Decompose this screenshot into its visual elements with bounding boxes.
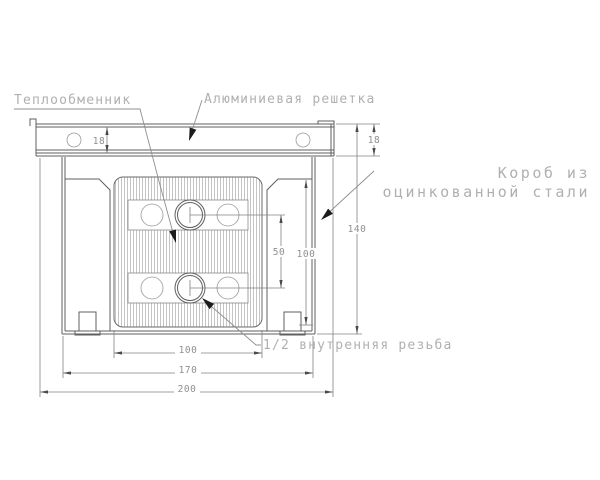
callout-steel-box: Короб из оцинкованной стали [319, 164, 590, 223]
technical-drawing: 18 18 140 100 [0, 0, 600, 480]
dim-text: 50 [273, 247, 285, 258]
dimension-pipe-spacing: 50 [269, 215, 290, 288]
grille-hole-left [67, 133, 81, 147]
box-inner-profile-left [65, 179, 110, 331]
grille-right-lip [318, 121, 334, 156]
dim-text: 100 [297, 249, 316, 260]
dim-text: 170 [179, 365, 198, 376]
thread-label: 1/2 внутренняя резьба [263, 338, 453, 353]
dim-text: 18 [93, 136, 105, 147]
steel-box-label-line2: оцинкованной стали [382, 183, 590, 201]
aluminum-grille-label: Алюминиевая решетка [204, 92, 376, 107]
dimension-grille-height-right: 18 [336, 124, 382, 156]
foot-right [284, 312, 301, 331]
heat-exchanger-label: Теплообменник [14, 93, 131, 108]
leader-arrow-icon [186, 128, 197, 143]
heat-exchanger [114, 177, 285, 327]
steel-box-label-line1: Короб из [498, 164, 590, 182]
grille-hole-right [296, 133, 310, 147]
dimension-grille-height-left: 18 [93, 127, 109, 153]
heat-exchanger-body [114, 177, 262, 327]
callouts: Теплообменник Алюминиевая решетка Короб … [14, 92, 590, 353]
foot-left [79, 312, 96, 331]
grille-left-lip [30, 119, 36, 156]
drawing-canvas: 18 18 140 100 [0, 0, 600, 480]
aluminum-grille [30, 119, 334, 156]
dim-text: 18 [368, 135, 380, 146]
dim-text: 100 [179, 345, 198, 356]
dim-text: 140 [348, 224, 367, 235]
callout-aluminum-grille: Алюминиевая решетка [186, 92, 376, 142]
dim-text: 200 [178, 384, 197, 395]
